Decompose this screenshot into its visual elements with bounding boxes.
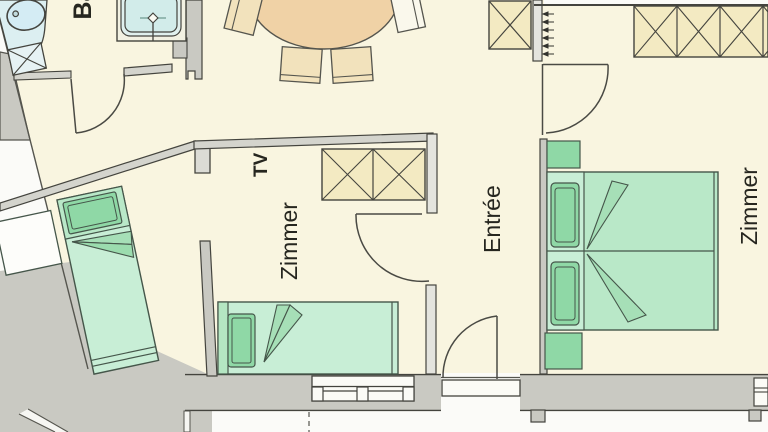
svg-text:Zimmer: Zimmer [736,167,762,245]
svg-text:Zimmer: Zimmer [276,202,302,280]
svg-text:Bad: Bad [69,0,97,20]
svg-text:TV: TV [251,152,272,177]
svg-text:Entrée: Entrée [479,185,505,253]
